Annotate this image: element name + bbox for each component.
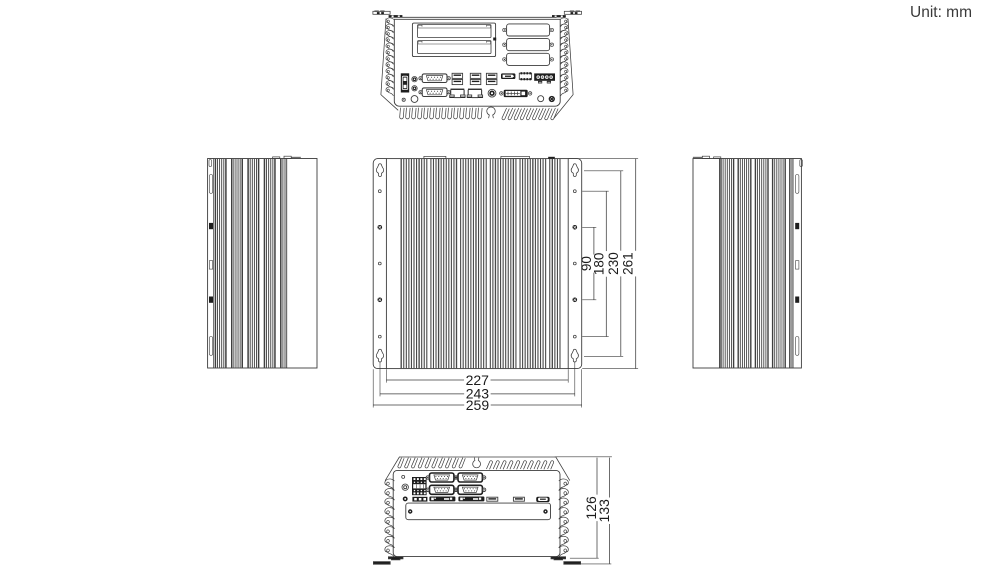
svg-text:133: 133: [596, 499, 612, 523]
svg-text:259: 259: [466, 397, 490, 413]
svg-text:230: 230: [606, 252, 621, 275]
svg-text:261: 261: [621, 252, 636, 275]
svg-text:Unit: mm: Unit: mm: [910, 4, 972, 21]
svg-text:180: 180: [591, 253, 606, 276]
